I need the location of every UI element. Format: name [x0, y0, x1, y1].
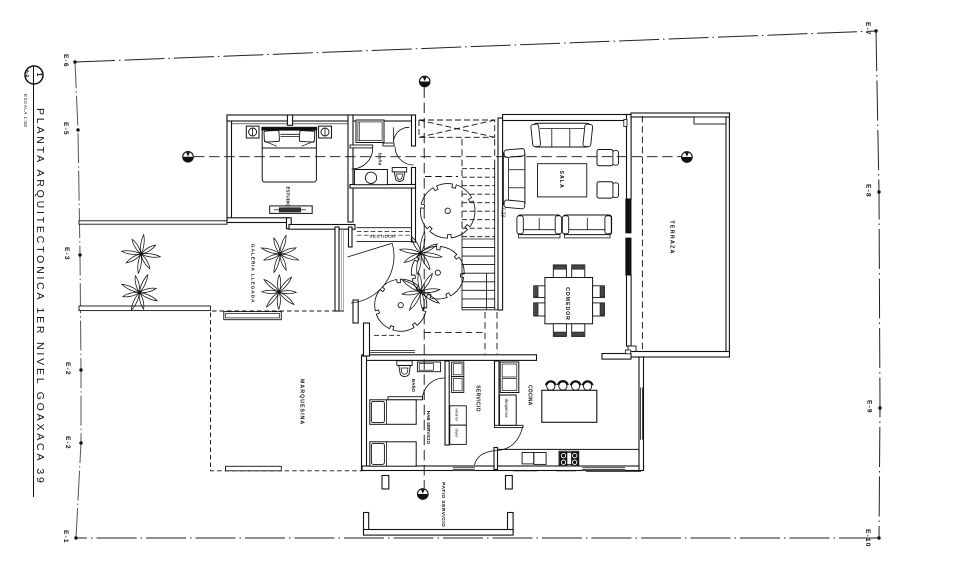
- svg-text:ESTUDIO: ESTUDIO: [286, 187, 291, 208]
- svg-text:E-8: E-8: [865, 184, 872, 198]
- svg-text:washer: washer: [455, 409, 460, 422]
- svg-text:E-3: E-3: [63, 247, 70, 261]
- svg-text:PATIO SERVICIO: PATIO SERVICIO: [440, 482, 446, 527]
- svg-text:E-10: E-10: [864, 529, 871, 548]
- svg-text:E-1: E-1: [62, 530, 69, 544]
- svg-text:7.23: 7.23: [500, 207, 506, 217]
- svg-text:baño: baño: [378, 153, 383, 166]
- svg-text:COMEDOR: COMEDOR: [564, 287, 570, 321]
- svg-text:SERVICIO: SERVICIO: [475, 385, 481, 412]
- svg-text:PLANTA ARQUITECTONICA 1ER NIVE: PLANTA ARQUITECTONICA 1ER NIVEL GOAXACA …: [34, 108, 46, 486]
- svg-text:MARQUESINA: MARQUESINA: [299, 379, 305, 425]
- svg-text:SALA: SALA: [558, 171, 564, 189]
- svg-text:COCINA: COCINA: [526, 385, 532, 406]
- svg-text:E-2: E-2: [64, 436, 71, 450]
- svg-text:HAB SERVICIO: HAB SERVICIO: [426, 411, 431, 445]
- svg-text:1: 1: [35, 73, 42, 77]
- svg-text:dryer: dryer: [455, 429, 460, 439]
- svg-text:A-2: A-2: [24, 70, 30, 78]
- svg-text:VESTIDOR: VESTIDOR: [370, 234, 397, 239]
- svg-text:TERRAZA: TERRAZA: [668, 220, 674, 254]
- svg-text:E-2: E-2: [64, 362, 71, 376]
- svg-text:despensa: despensa: [504, 399, 509, 419]
- svg-text:ESCALA 1:50: ESCALA 1:50: [23, 94, 28, 127]
- svg-text:E-7: E-7: [864, 22, 871, 36]
- svg-text:E-6: E-6: [62, 54, 69, 68]
- svg-text:E-5: E-5: [62, 122, 69, 136]
- svg-text:E-9: E-9: [866, 400, 873, 414]
- svg-text:GALERIA LLEGADA: GALERIA LLEGADA: [250, 244, 256, 304]
- svg-text:BAÑO: BAÑO: [411, 379, 416, 393]
